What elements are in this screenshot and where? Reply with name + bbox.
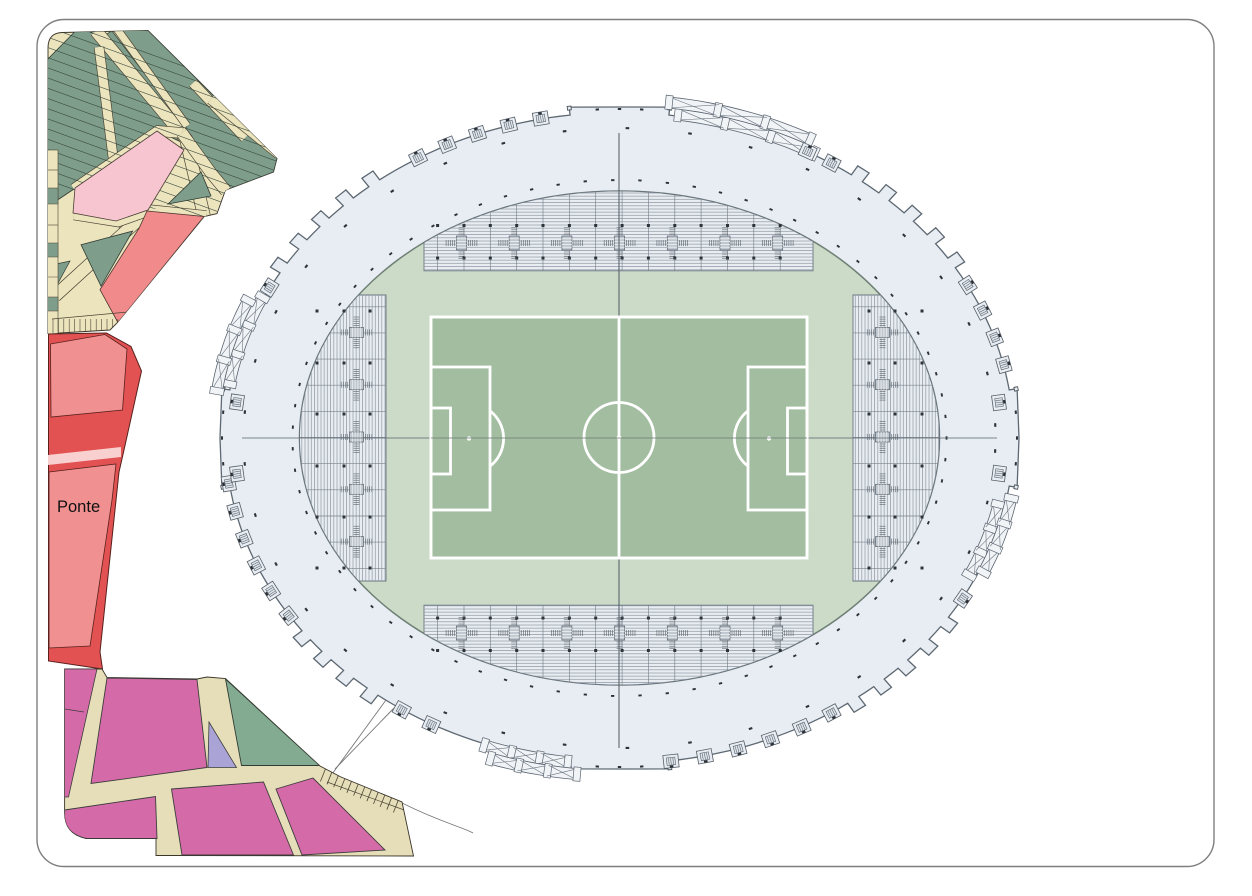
- svg-text:Ponte: Ponte: [57, 498, 100, 516]
